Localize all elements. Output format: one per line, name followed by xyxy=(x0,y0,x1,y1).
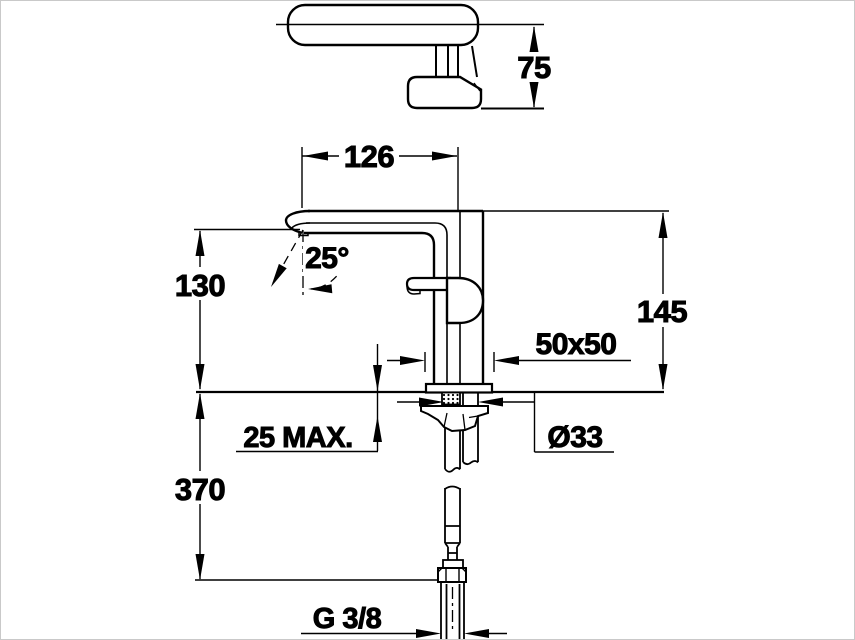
arrow-right-icon xyxy=(400,356,425,365)
dim-50x50-label: 50x50 xyxy=(536,328,617,361)
arrow-up-icon xyxy=(196,230,205,256)
arc-arrow-icon xyxy=(308,284,332,293)
dim-130-label: 130 xyxy=(175,268,225,303)
arrow-left-icon xyxy=(464,629,489,638)
technical-drawing-canvas: 75 xyxy=(1,1,855,640)
spout-tip-inner xyxy=(292,223,310,228)
arrow-down-icon xyxy=(530,82,539,108)
arrow-up-icon xyxy=(530,26,539,52)
angle-25-label: 25° xyxy=(305,242,349,275)
faucet-front-view xyxy=(196,211,669,393)
dim-hole-diameter: Ø33 xyxy=(397,392,614,454)
lever-arm xyxy=(407,278,450,290)
top-view-body xyxy=(408,77,481,108)
stream-angle-annotation: 25° xyxy=(271,230,351,297)
dim-spout-reach: 126 xyxy=(302,139,458,210)
arrow-right-icon xyxy=(432,152,457,161)
dim-75-label: 75 xyxy=(517,50,551,85)
base-plate xyxy=(426,384,492,393)
arrow-down-icon xyxy=(196,554,205,580)
dim-max-deck-thickness: 25 MAX. xyxy=(236,344,382,454)
lever-boss xyxy=(447,278,483,323)
mounting-hardware xyxy=(421,393,488,640)
hose-lower xyxy=(445,487,460,544)
arrow-up-icon xyxy=(196,393,205,419)
arrow-left-icon xyxy=(303,152,328,161)
arrow-left-icon xyxy=(494,356,519,365)
dim-g38-label: G 3/8 xyxy=(313,603,382,635)
arrow-up-icon xyxy=(659,212,668,238)
connector-flange xyxy=(443,560,463,568)
dim-base-footprint: 50x50 xyxy=(387,328,631,372)
top-view-neck xyxy=(436,45,477,77)
handle-top-view xyxy=(276,5,544,109)
dim-total-height: 145 xyxy=(633,212,693,390)
arrow-down-icon xyxy=(659,364,668,390)
dim-126-label: 126 xyxy=(344,139,394,174)
dim-370-label: 370 xyxy=(175,472,225,507)
arrow-down-icon xyxy=(196,364,205,390)
hose-collar xyxy=(445,543,460,560)
dim-spout-height: 130 xyxy=(171,230,300,391)
dim-o33-label: Ø33 xyxy=(547,421,602,454)
dim-connection-thread: G 3/8 xyxy=(301,603,507,638)
dim-145-label: 145 xyxy=(637,294,687,329)
arrow-up-icon xyxy=(373,416,382,442)
knurled-nut xyxy=(442,393,460,405)
arrow-right-icon xyxy=(416,629,441,638)
dim-25max-label: 25 MAX. xyxy=(243,422,352,454)
hex-nut xyxy=(438,568,466,582)
drawing-page: 75 xyxy=(0,0,855,640)
arrow-down-icon xyxy=(373,365,382,391)
dim-handle-height: 75 xyxy=(515,26,553,108)
stream-arrow-icon xyxy=(271,264,287,287)
